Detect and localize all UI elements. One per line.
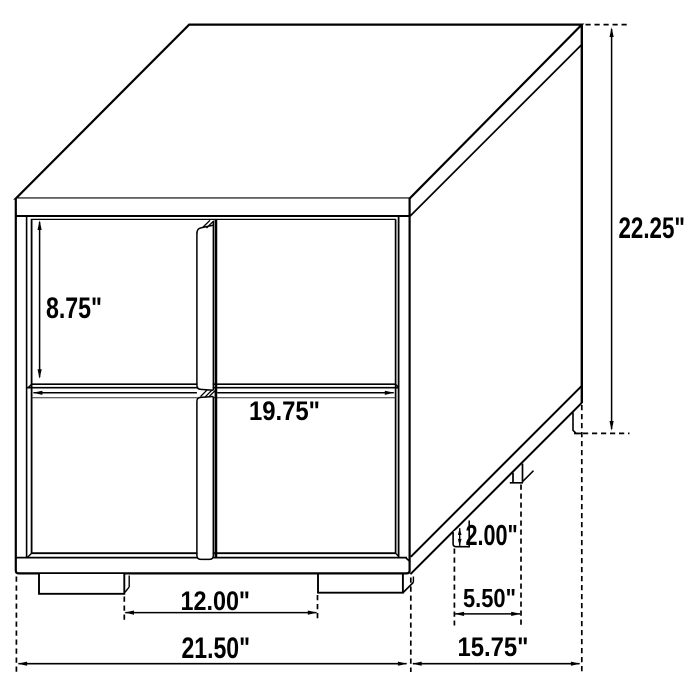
svg-text:22.25": 22.25" [619,212,686,245]
svg-text:2.00": 2.00" [466,520,518,552]
svg-text:19.75": 19.75" [249,396,320,426]
svg-text:12.00": 12.00" [181,586,251,616]
svg-text:5.50": 5.50" [463,585,516,613]
svg-text:21.50": 21.50" [182,632,251,665]
svg-text:15.75": 15.75" [458,632,529,662]
svg-text:8.75": 8.75" [46,292,102,325]
